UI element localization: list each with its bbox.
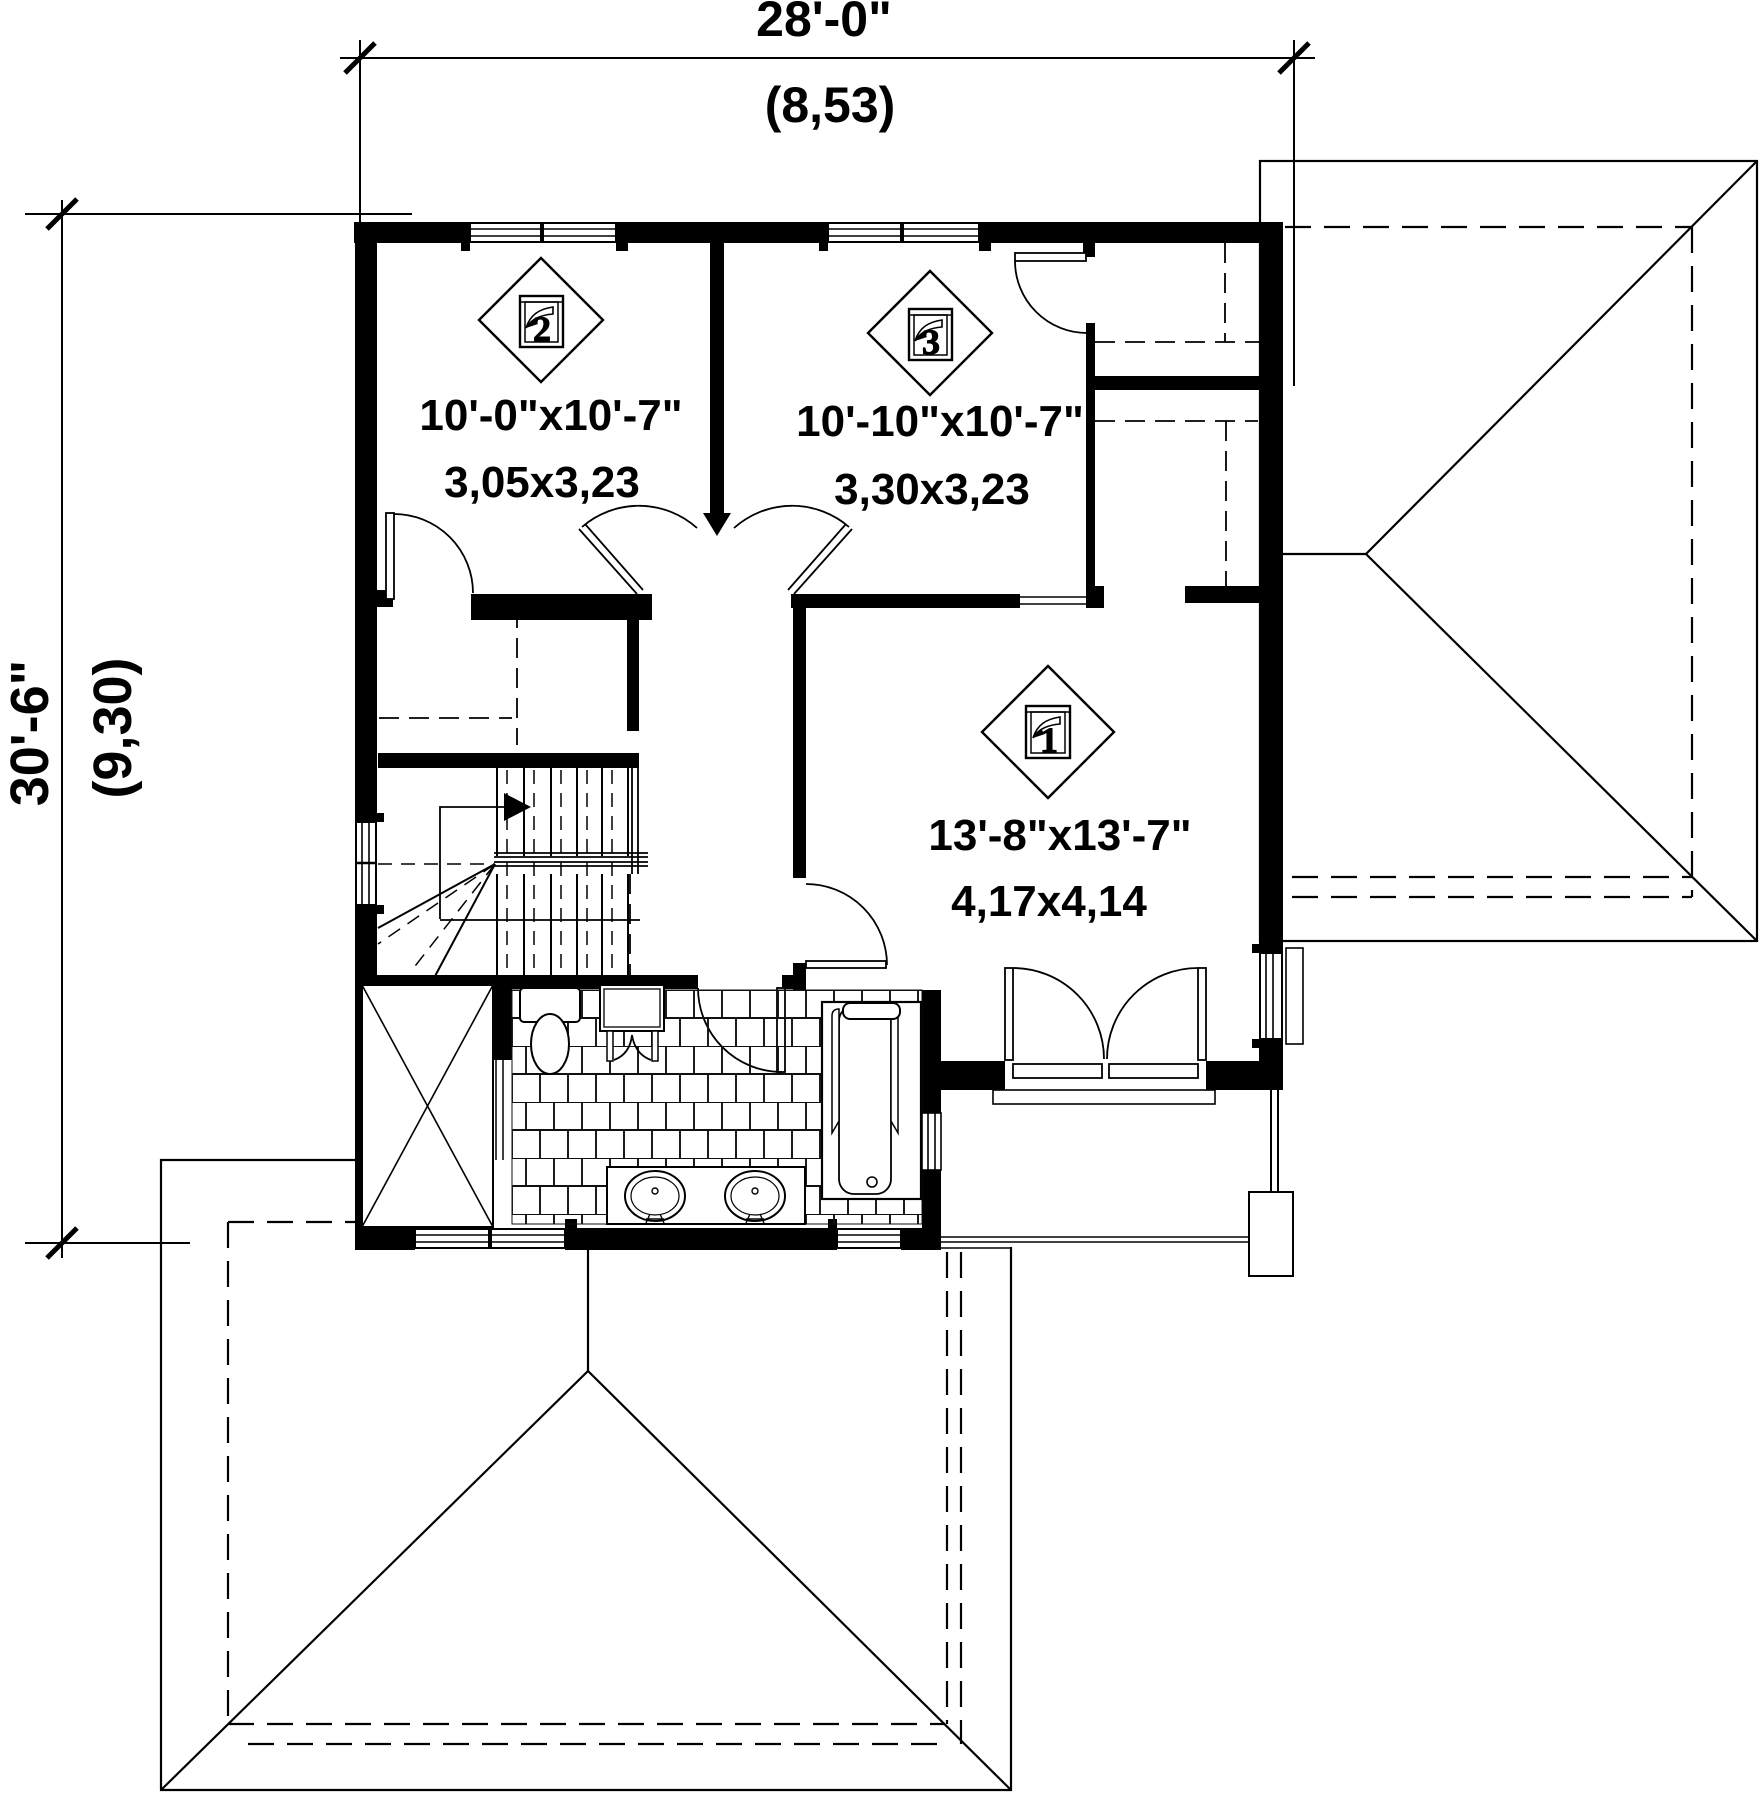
svg-text:2: 2 [533,309,551,349]
svg-text:1: 1 [1040,720,1058,760]
svg-text:(8,53): (8,53) [765,77,896,133]
svg-text:3,05x3,23: 3,05x3,23 [444,458,640,507]
svg-text:(9,30): (9,30) [83,657,143,798]
svg-text:3: 3 [922,322,940,362]
svg-text:3,30x3,23: 3,30x3,23 [834,465,1030,514]
svg-text:4,17x4,14: 4,17x4,14 [951,877,1147,926]
svg-text:10'-0"x10'-7": 10'-0"x10'-7" [419,391,682,440]
svg-text:10'-10"x10'-7": 10'-10"x10'-7" [796,397,1084,446]
svg-text:13'-8"x13'-7": 13'-8"x13'-7" [928,811,1191,860]
svg-text:28'-0": 28'-0" [756,0,892,47]
svg-text:30'-6": 30'-6" [0,660,60,807]
